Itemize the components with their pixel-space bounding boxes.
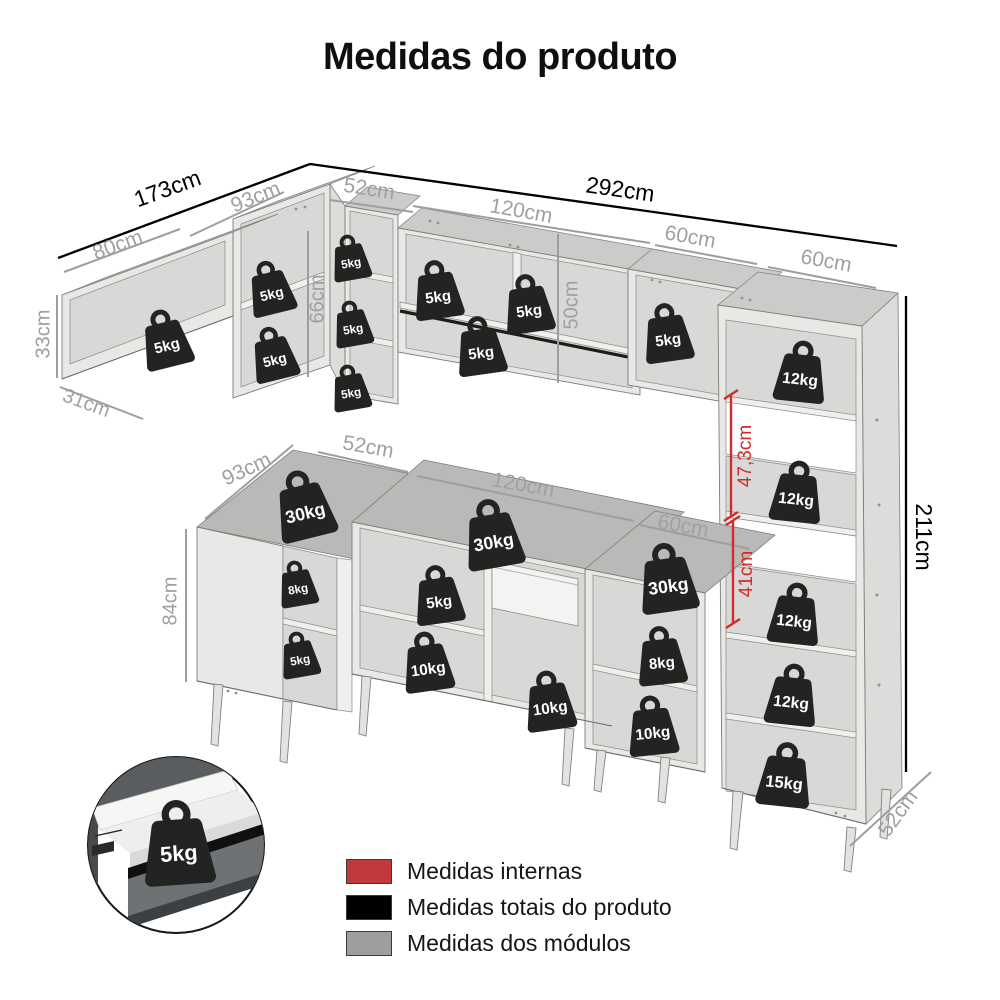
svg-text:5kg: 5kg: [425, 592, 453, 612]
legend-label: Medidas dos módulos: [407, 930, 631, 957]
dimension-label-module-60cm: 60cm: [799, 245, 854, 277]
dimension-label-total-292cm: 292cm: [584, 171, 656, 206]
svg-text:5kg: 5kg: [467, 343, 495, 363]
dimension-label-total-173cm: 173cm: [130, 164, 204, 212]
legend-label: Medidas totais do produto: [407, 894, 672, 921]
dimension-label-module-52cm: 52cm: [342, 174, 396, 205]
legend-label: Medidas internas: [407, 858, 582, 885]
svg-text:5kg: 5kg: [424, 287, 452, 307]
legend-swatch-modules: [346, 931, 392, 956]
svg-text:15kg: 15kg: [764, 772, 803, 794]
dimension-label-module-80cm: 80cm: [90, 226, 146, 265]
legend-item-total: Medidas totais do produto: [346, 894, 672, 921]
dimension-label-internal-41cm: 41cm: [736, 551, 757, 597]
svg-text:5kg: 5kg: [654, 330, 682, 350]
dimension-label-module-33cm: 33cm: [32, 310, 54, 359]
dimension-label-module-84cm: 84cm: [159, 577, 181, 626]
legend-item-internal: Medidas internas: [346, 858, 672, 885]
svg-text:5kg: 5kg: [515, 301, 543, 321]
legend-item-modules: Medidas dos módulos: [346, 930, 672, 957]
dimension-label-module-66cm: 66cm: [306, 275, 328, 324]
dimension-label-module-31cm: 31cm: [60, 385, 113, 422]
dimension-label-total-211cm: 211cm: [911, 503, 937, 570]
svg-text:8kg: 8kg: [648, 654, 675, 674]
legend-swatch-internal: [346, 859, 392, 884]
dimension-label-internal-47,3cm: 47,3cm: [735, 425, 756, 487]
svg-text:5kg: 5kg: [159, 839, 198, 867]
dimension-label-module-50cm: 50cm: [560, 281, 582, 330]
svg-text:10kg: 10kg: [635, 723, 671, 744]
product-measurements-page: Medidas do produto: [0, 0, 1000, 1000]
legend-swatch-total: [346, 895, 392, 920]
legend: Medidas internas Medidas totais do produ…: [346, 858, 672, 966]
kitchen-cabinet-dimensions-diagram: 173cm292cm211cm80cm93cm52cm120cm60cm60cm…: [0, 0, 1000, 1000]
